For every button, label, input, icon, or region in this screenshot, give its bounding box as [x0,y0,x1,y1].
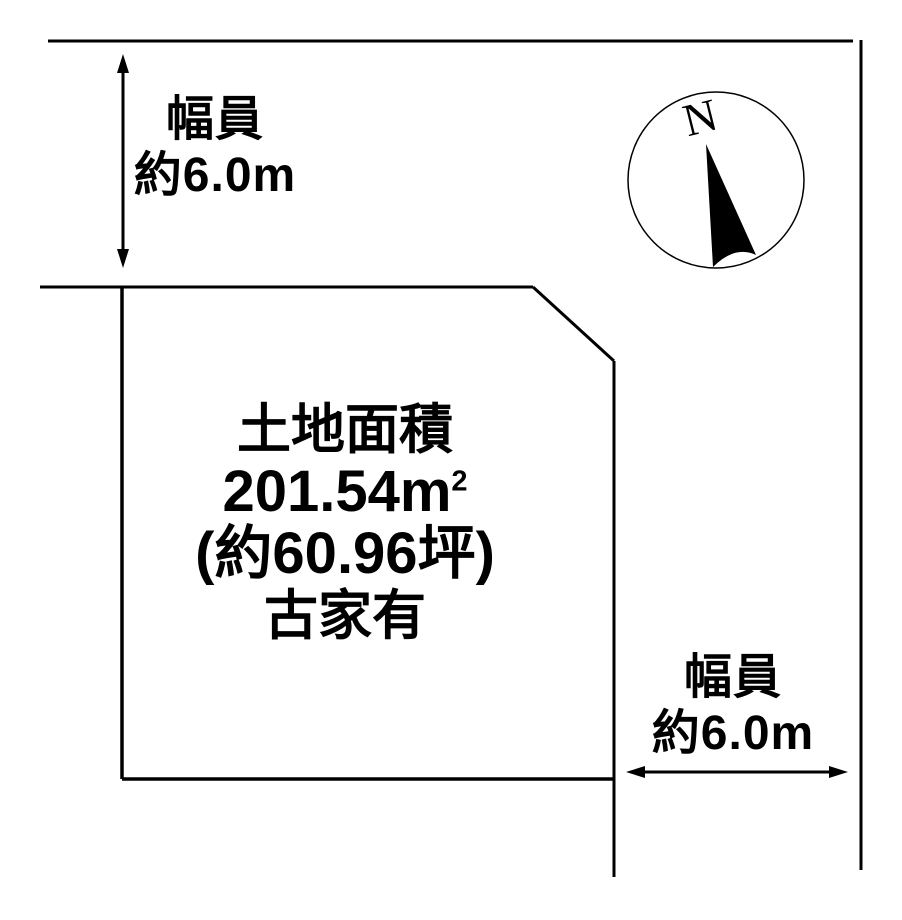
parcel-corner-cut-line [533,287,614,361]
road-width-arrow-horizontal [626,766,848,778]
parcel-area-m2-value: 201.54m [222,459,451,524]
road-width-label-top: 幅員 約6.0m [115,92,315,204]
compass-north-label: N [678,89,723,147]
land-plot-diagram: N 幅員 約6.0m 幅員 約6.0m 土地面積 201.54m2 (約60.9… [0,0,902,920]
horizontal-arrow-head-right-icon [829,766,848,778]
vertical-arrow-head-up-icon [117,54,129,73]
parcel-area-m2-superscript: 2 [451,466,467,498]
compass-needle-icon [706,144,756,267]
horizontal-arrow-head-left-icon [626,766,645,778]
parcel-area-tsubo: (約60.96坪) [165,523,525,585]
vertical-arrow-head-down-icon [117,249,129,268]
road-width-label-right-line2: 約6.0m [633,706,833,762]
road-width-label-top-line1: 幅員 [115,92,315,148]
road-width-label-right-line1: 幅員 [633,650,833,706]
compass: N [628,89,804,268]
road-width-label-top-line2: 約6.0m [115,148,315,204]
parcel-area-title: 土地面積 [165,399,525,461]
parcel-building-note: 古家有 [165,585,525,647]
parcel-area-m2: 201.54m2 [165,461,525,523]
parcel-info-block: 土地面積 201.54m2 (約60.96坪) 古家有 [165,399,525,647]
road-width-label-right: 幅員 約6.0m [633,650,833,762]
